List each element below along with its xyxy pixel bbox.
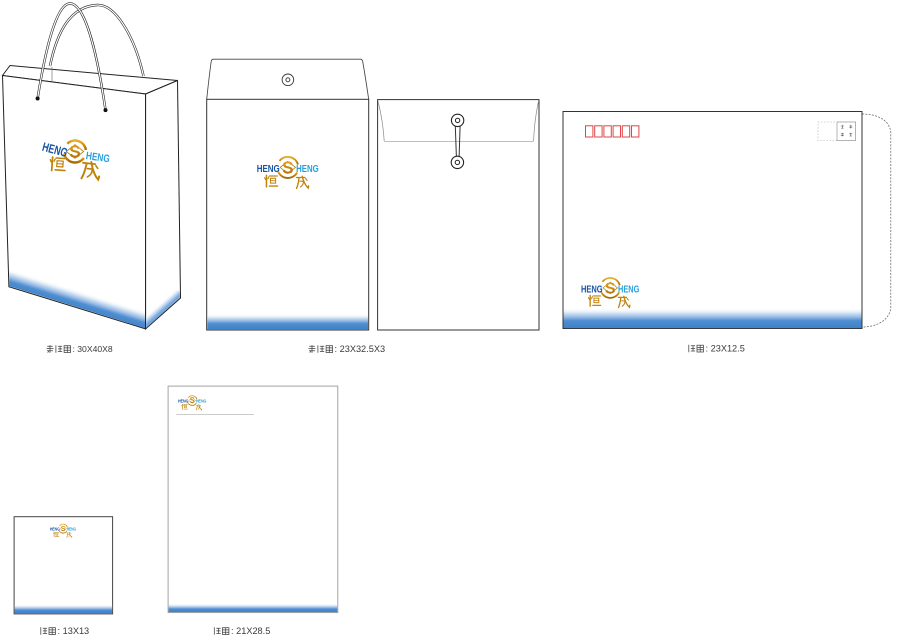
- svg-text:: 23X32.5X3: : 23X32.5X3: [335, 344, 386, 354]
- svg-text:: 21X28.5: : 21X28.5: [231, 626, 270, 636]
- svg-text:: 30X40X8: : 30X40X8: [73, 344, 113, 354]
- svg-text:: 13X13: : 13X13: [58, 626, 90, 636]
- svg-text:S: S: [69, 142, 81, 162]
- svg-text:: 23X12.5: : 23X12.5: [706, 344, 745, 354]
